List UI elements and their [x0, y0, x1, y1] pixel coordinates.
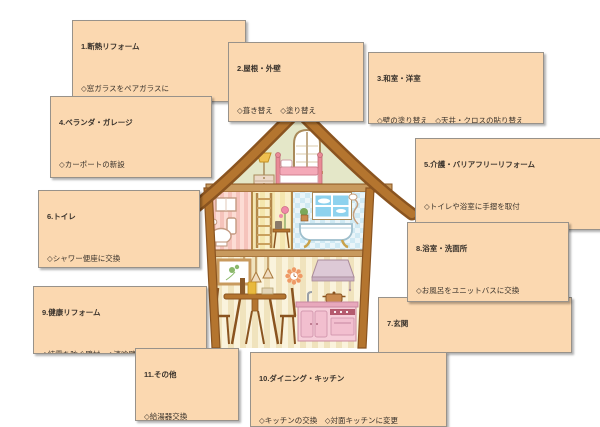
box-dining-kitchen: 10.ダイニング・キッチン ◇キッチンの交換 ◇対面キッチンに変更 ◇ダイニング…	[250, 352, 447, 427]
box-others: 11.その他 ◇給湯器交換 ◇エクステリアなど	[135, 348, 239, 421]
picture-frame	[218, 260, 250, 284]
category-item: ◇窓ガラスをペアガラスに	[81, 85, 241, 93]
reform-diagram: 1.断熱リフォーム ◇窓ガラスをペアガラスに ◇屋根裏にウレタン吹き付けなど 2…	[0, 0, 600, 426]
category-title: 8.浴室・洗面所	[416, 245, 564, 253]
category-title: 9.健康リフォーム	[42, 309, 202, 317]
box-toilet: 6.トイレ ◇シャワー便座に交換 ◇和式便器を洋式便器に交換など	[38, 190, 200, 268]
box-insulation: 1.断熱リフォーム ◇窓ガラスをペアガラスに ◇屋根裏にウレタン吹き付けなど	[72, 20, 246, 102]
category-item: ◇葺き替え ◇塗り替え	[237, 107, 359, 115]
box-veranda-garage: 4.ベランダ・ガレージ ◇カーポートの新設 ◇ベランダのぼうすい工事 ◇フェンス…	[50, 96, 212, 178]
category-title: 3.和室・洋室	[377, 75, 539, 83]
plant	[300, 208, 308, 221]
bathroom-window	[313, 193, 352, 220]
category-item: ◇カーポートの新設	[59, 161, 207, 169]
category-title: 2.屋根・外壁	[237, 65, 359, 73]
box-bathroom-washroom: 8.浴室・洗面所 ◇お風呂をユニットバスに交換 ◇洗面化粧台の交換など ◇水栓交…	[407, 222, 569, 302]
box-japanese-western-rooms: 3.和室・洋室 ◇壁の塗り替え ◇天井・クロスの貼り替え ◇襖・障子の貼り替えな…	[368, 52, 544, 124]
box-entrance: 7.玄関 ◇玄関戸の交換 ◇鍵の交換など	[378, 297, 572, 353]
category-item: ◇トイレや浴室に手摺を取付	[424, 203, 600, 211]
attic-floor	[206, 184, 392, 192]
kitchen-counter	[296, 302, 358, 341]
category-title: 4.ベランダ・ガレージ	[59, 119, 207, 127]
photo-frame	[275, 221, 282, 229]
wall-clock	[285, 267, 302, 284]
category-item: ◇壁の塗り替え ◇天井・クロスの貼り替え	[377, 117, 539, 124]
category-title: 10.ダイニング・キッチン	[259, 375, 442, 383]
category-title: 6.トイレ	[47, 213, 195, 221]
category-item: ◇シャワー便座に交換	[47, 255, 195, 263]
category-title: 1.断熱リフォーム	[81, 43, 241, 51]
box-barrier-free: 5.介護・バリアフリーリフォーム ◇トイレや浴室に手摺を取付 ◇床の段差解消 ◇…	[415, 138, 600, 230]
box-health-reform: 9.健康リフォーム ◇結露を防ぐ壁材 ◇漆喰壁に塗り替え ◇健康クロスに張り替え…	[33, 286, 207, 354]
floor-divider	[208, 250, 370, 257]
category-title: 5.介護・バリアフリーリフォーム	[424, 161, 600, 169]
box-roof-exterior-wall: 2.屋根・外壁 ◇葺き替え ◇塗り替え ◇雨漏り ◇ヒビ割れ補修など	[228, 42, 364, 122]
category-title: 7.玄関	[387, 320, 567, 328]
category-item: ◇給湯器交換	[144, 413, 234, 421]
category-item: ◇お風呂をユニットバスに交換	[416, 287, 564, 295]
category-item: ◇キッチンの交換 ◇対面キッチンに変更	[259, 417, 442, 425]
category-title: 11.その他	[144, 371, 234, 379]
mirror-cabinet	[216, 198, 236, 211]
